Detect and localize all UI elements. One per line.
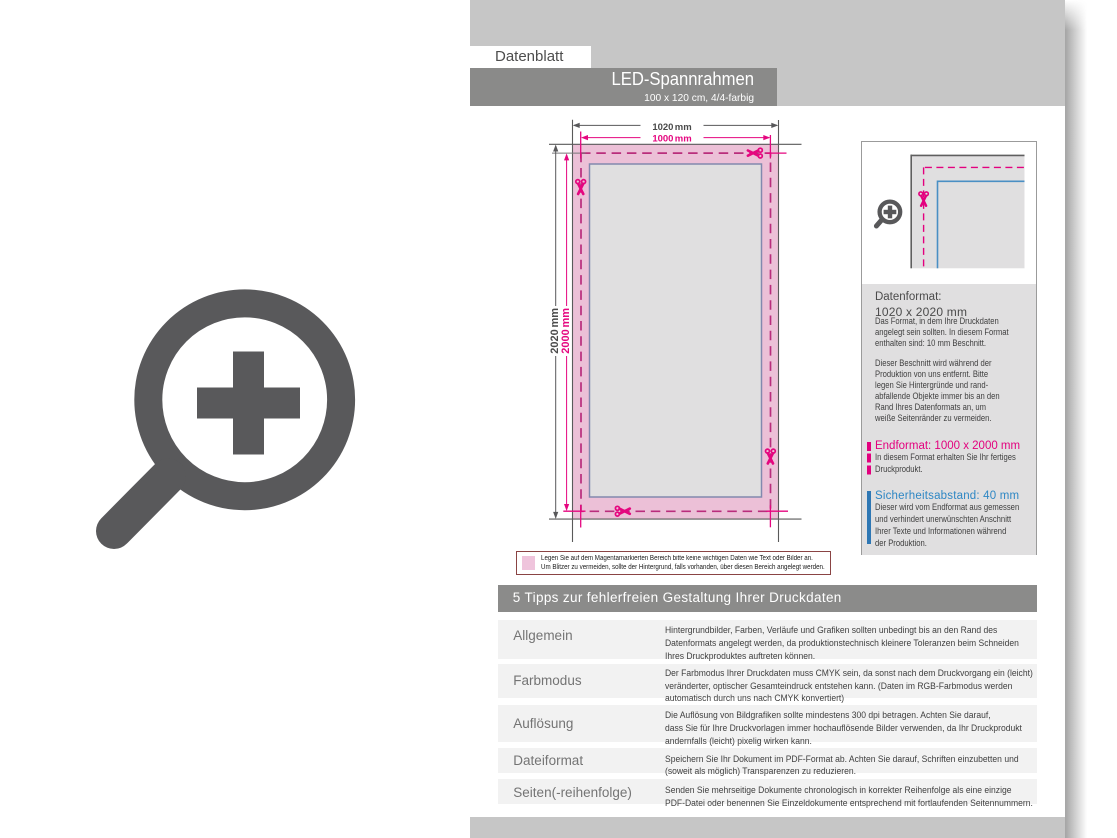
svg-text:2000 mm: 2000 mm <box>560 308 572 354</box>
svg-text:1020 mm: 1020 mm <box>652 122 691 133</box>
svg-text:1000 mm: 1000 mm <box>652 134 691 145</box>
